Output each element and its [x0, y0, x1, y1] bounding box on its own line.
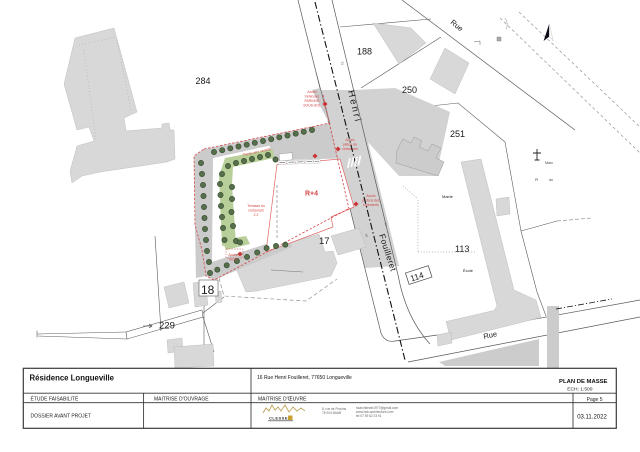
- svg-text:113: 113: [455, 244, 469, 254]
- svg-text:Accès: Accès: [307, 90, 317, 94]
- svg-text:MAITRISE D'OUVRAGE: MAITRISE D'OUVRAGE: [154, 397, 209, 403]
- svg-text:tel 07 59 62 23 91: tel 07 59 62 23 91: [356, 414, 382, 418]
- svg-text:03.11.2022: 03.11.2022: [577, 415, 607, 421]
- svg-text:École: École: [463, 268, 474, 273]
- svg-text:Marc: Marc: [545, 161, 553, 165]
- svg-text:18: 18: [201, 283, 215, 297]
- svg-text:Pl: Pl: [535, 178, 538, 182]
- svg-text:Résidence Longueville: Résidence Longueville: [30, 374, 115, 383]
- svg-text:du: du: [549, 178, 553, 182]
- svg-text:local: local: [230, 258, 237, 262]
- svg-text:251: 251: [450, 129, 465, 139]
- svg-text:DOSSIER AVANT PROJET: DOSSIER AVANT PROJET: [31, 414, 92, 420]
- svg-text:284: 284: [196, 76, 211, 86]
- svg-text:restaurant: restaurant: [248, 209, 263, 213]
- svg-text:Accès: Accès: [228, 253, 238, 257]
- svg-text:Accès: Accès: [366, 194, 376, 198]
- svg-text:PARKING: PARKING: [304, 99, 319, 103]
- svg-text:17: 17: [319, 236, 330, 247]
- svg-text:piéton du: piéton du: [343, 143, 357, 147]
- svg-text:188: 188: [357, 47, 372, 57]
- svg-text:Mairie: Mairie: [442, 194, 454, 199]
- svg-text:ÉTUDE FAISABILITÉ: ÉTUDE FAISABILITÉ: [31, 396, 79, 403]
- svg-text:16 Rue Henri Fouilleret, 77650: 16 Rue Henri Fouilleret, 77650 Longuevil…: [257, 375, 352, 381]
- svg-text:MAITRISE D'ŒUVRE: MAITRISE D'ŒUVRE: [258, 397, 307, 403]
- svg-text:250: 250: [402, 85, 417, 95]
- svg-text:CLESSE: CLESSE: [269, 416, 288, 421]
- svg-text:PLAN DE MASSE: PLAN DE MASSE: [559, 379, 608, 385]
- svg-text:75 004 BAAB: 75 004 BAAB: [322, 411, 341, 415]
- svg-text:ECH: 1:500: ECH: 1:500: [567, 386, 593, 392]
- svg-text:SOUS-SOL: SOUS-SOL: [303, 104, 321, 108]
- svg-text:Véhicules: Véhicules: [305, 95, 320, 99]
- svg-text:restaurant: restaurant: [342, 147, 357, 151]
- svg-text:2.2: 2.2: [254, 213, 259, 217]
- svg-text:Page 5: Page 5: [587, 397, 603, 403]
- svg-text:229: 229: [159, 321, 175, 332]
- svg-text:R+4: R+4: [305, 191, 318, 198]
- svg-text:Terrasse du: Terrasse du: [247, 204, 265, 208]
